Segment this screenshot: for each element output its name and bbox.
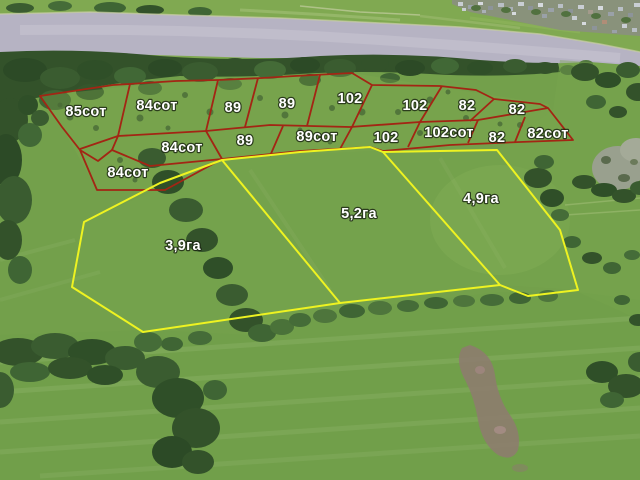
small-lot-label-89-c: 89 [237, 133, 254, 149]
small-lot-label-82-c: 82 [489, 130, 506, 146]
small-lot-label-102sot: 102сот [424, 125, 474, 141]
aerial-photo: 85сот 84сот 89 89 102 102 82 82 84сот 89… [0, 0, 640, 480]
small-lot-label-82-b: 82 [509, 102, 526, 118]
small-lot-label-102-c: 102 [373, 130, 398, 146]
small-lot-label-89-b: 89 [279, 96, 296, 112]
small-lot-label-89sot: 89сот [296, 129, 337, 145]
small-lot-label-85sot: 85сот [65, 104, 106, 120]
small-lot-label-102-b: 102 [402, 98, 427, 114]
large-lot-label-4-9ga: 4,9га [463, 191, 499, 207]
aerial-photo-canvas: 85сот 84сот 89 89 102 102 82 82 84сот 89… [0, 0, 640, 480]
small-lot-label-82-a: 82 [459, 98, 476, 114]
large-lot-label-5-2ga: 5,2га [341, 206, 377, 222]
small-lot-label-84sot-b: 84сот [161, 140, 202, 156]
large-lot-label-3-9ga: 3,9га [165, 238, 201, 254]
small-lot-label-84sot-a: 84сот [136, 98, 177, 114]
small-lot-label-102-a: 102 [337, 91, 362, 107]
small-lot-label-89-a: 89 [225, 100, 242, 116]
small-lot-label-84sot-c: 84сот [107, 165, 148, 181]
small-lot-label-82sot: 82сот [527, 126, 568, 142]
